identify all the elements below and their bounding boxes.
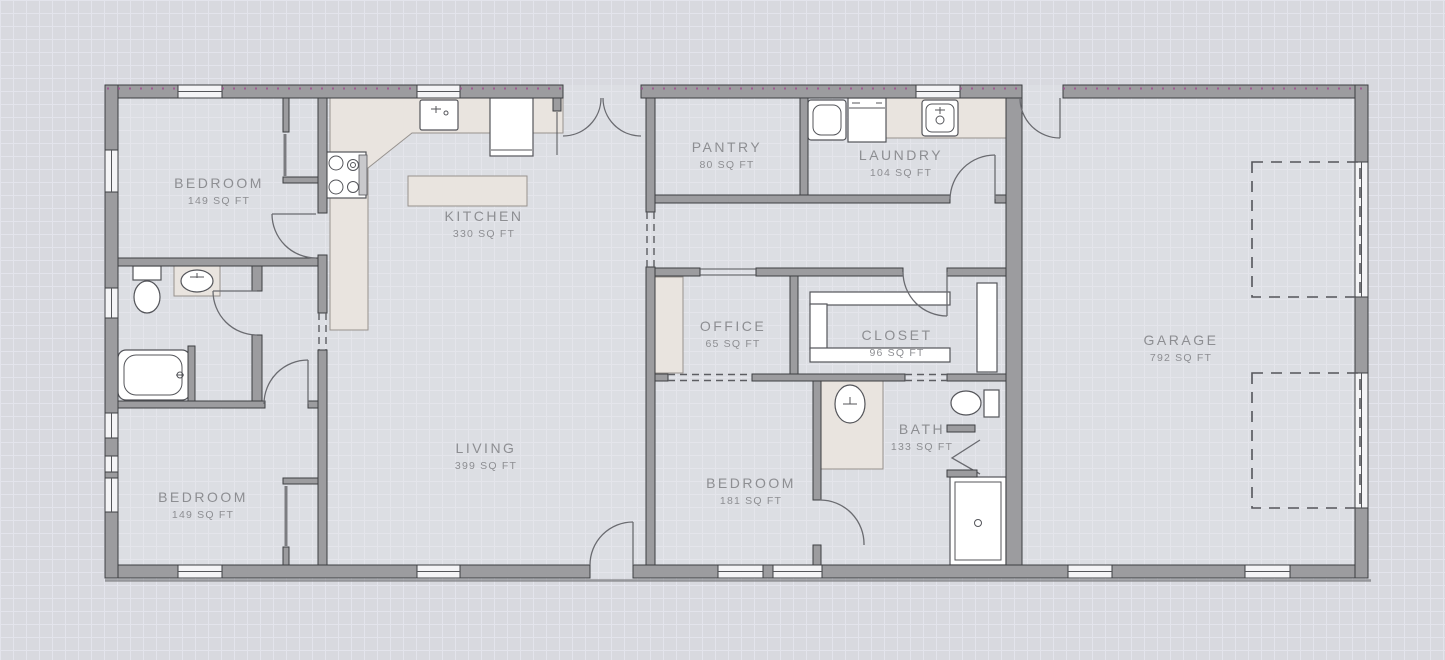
wall-segment: [641, 85, 916, 98]
stove: [324, 152, 367, 198]
wall-segment: [252, 266, 262, 291]
garage-door-opening: [1355, 373, 1368, 508]
wall-segment: [105, 85, 118, 150]
room-area: 104 SQ FT: [870, 167, 932, 179]
wall-segment: [960, 85, 1022, 98]
wall-segment: [655, 374, 668, 381]
wall-segment: [105, 512, 118, 578]
kitchen-sink: [420, 100, 458, 130]
window: [417, 85, 460, 98]
wall-segment: [118, 401, 265, 408]
wall-segment: [222, 565, 417, 578]
window: [105, 478, 118, 512]
wall-segment: [1112, 565, 1245, 578]
wall-segment: [283, 547, 289, 565]
wall-segment: [790, 276, 798, 374]
wall-segment: [947, 268, 1006, 276]
window: [718, 565, 763, 578]
window: [105, 456, 118, 472]
room-area: 330 SQ FT: [453, 228, 515, 240]
wall-segment: [822, 565, 1068, 578]
wall-segment: [105, 438, 118, 456]
wall-segment: [105, 192, 118, 288]
wall-segment: [947, 425, 975, 432]
window: [1068, 565, 1112, 578]
room-name: GARAGE: [1144, 332, 1219, 348]
wall-segment: [1355, 297, 1368, 373]
wall-segment: [118, 258, 318, 266]
wall-segment: [655, 268, 700, 276]
room-name: LIVING: [456, 440, 517, 456]
vanity-sink-main-bath: [835, 385, 865, 423]
wall-segment: [752, 374, 905, 381]
room-area: 149 SQ FT: [172, 509, 234, 521]
wall-segment: [318, 98, 327, 213]
room-area: 96 SQ FT: [869, 347, 924, 359]
wall-segment: [460, 565, 590, 578]
room-name: BEDROOM: [706, 475, 796, 491]
wall-segment: [222, 85, 417, 98]
wall-segment: [308, 401, 318, 408]
toilet-main-bath: [951, 390, 999, 417]
room-name: BEDROOM: [174, 175, 264, 191]
room-name: LAUNDRY: [859, 147, 943, 163]
laundry-sink: [922, 100, 958, 136]
wall-segment: [283, 177, 318, 183]
wall-segment: [318, 255, 327, 313]
room-area: 80 SQ FT: [699, 159, 754, 171]
room-name: BEDROOM: [158, 489, 248, 505]
office-builtin: [655, 277, 683, 373]
wall-segment: [460, 85, 563, 98]
wall-segment: [763, 565, 773, 578]
wall-segment: [813, 545, 821, 565]
wall-segment: [646, 98, 655, 212]
wall-segment: [995, 195, 1006, 203]
window: [105, 413, 118, 438]
room-name: PANTRY: [692, 139, 763, 155]
room-area: 792 SQ FT: [1150, 352, 1212, 364]
dryer: [848, 98, 886, 142]
wall-segment: [1355, 508, 1368, 578]
window: [916, 85, 960, 98]
refrigerator: [490, 98, 533, 156]
wall-segment: [646, 267, 655, 565]
wall-segment: [1355, 85, 1368, 162]
window: [178, 85, 222, 98]
room-name: OFFICE: [700, 318, 766, 334]
wall-segment: [283, 478, 318, 484]
wall-segment: [947, 374, 1006, 381]
window: [178, 565, 222, 578]
wall-segment: [252, 335, 262, 401]
room-name: BATH: [899, 421, 945, 437]
wall-segment: [1063, 85, 1368, 98]
wall-segment: [800, 98, 808, 203]
wall-segment: [283, 98, 289, 132]
vanity-sink-hall-bath: [181, 270, 213, 292]
room-area: 149 SQ FT: [188, 195, 250, 207]
wall-segment: [318, 350, 327, 565]
room-area: 65 SQ FT: [705, 338, 760, 350]
wall-segment: [813, 381, 821, 500]
garage-door-opening: [1355, 162, 1368, 297]
wall-segment: [105, 472, 118, 478]
wall-segment: [756, 268, 903, 276]
window: [417, 565, 460, 578]
room-area: 399 SQ FT: [455, 460, 517, 472]
window: [105, 288, 118, 318]
wall-segment: [188, 346, 195, 401]
bathtub: [118, 350, 190, 400]
wall-segment: [655, 195, 950, 203]
window: [105, 150, 118, 192]
wall-segment: [633, 565, 718, 578]
floor-plan-canvas: BEDROOM149 SQ FTKITCHEN330 SQ FTPANTRY80…: [0, 0, 1445, 660]
window: [1245, 565, 1290, 578]
room-name: CLOSET: [861, 327, 932, 343]
washer: [808, 100, 846, 140]
room-area: 133 SQ FT: [891, 441, 953, 453]
wall-segment: [1006, 98, 1022, 565]
shower: [950, 477, 1006, 565]
room-name: KITCHEN: [445, 208, 524, 224]
room-area: 181 SQ FT: [720, 495, 782, 507]
wall-segment: [553, 98, 561, 111]
window: [773, 565, 822, 578]
wall-segment: [947, 470, 977, 477]
wall-segment: [105, 318, 118, 413]
kitchen-island: [408, 176, 527, 206]
toilet-hall-bath: [133, 266, 161, 313]
